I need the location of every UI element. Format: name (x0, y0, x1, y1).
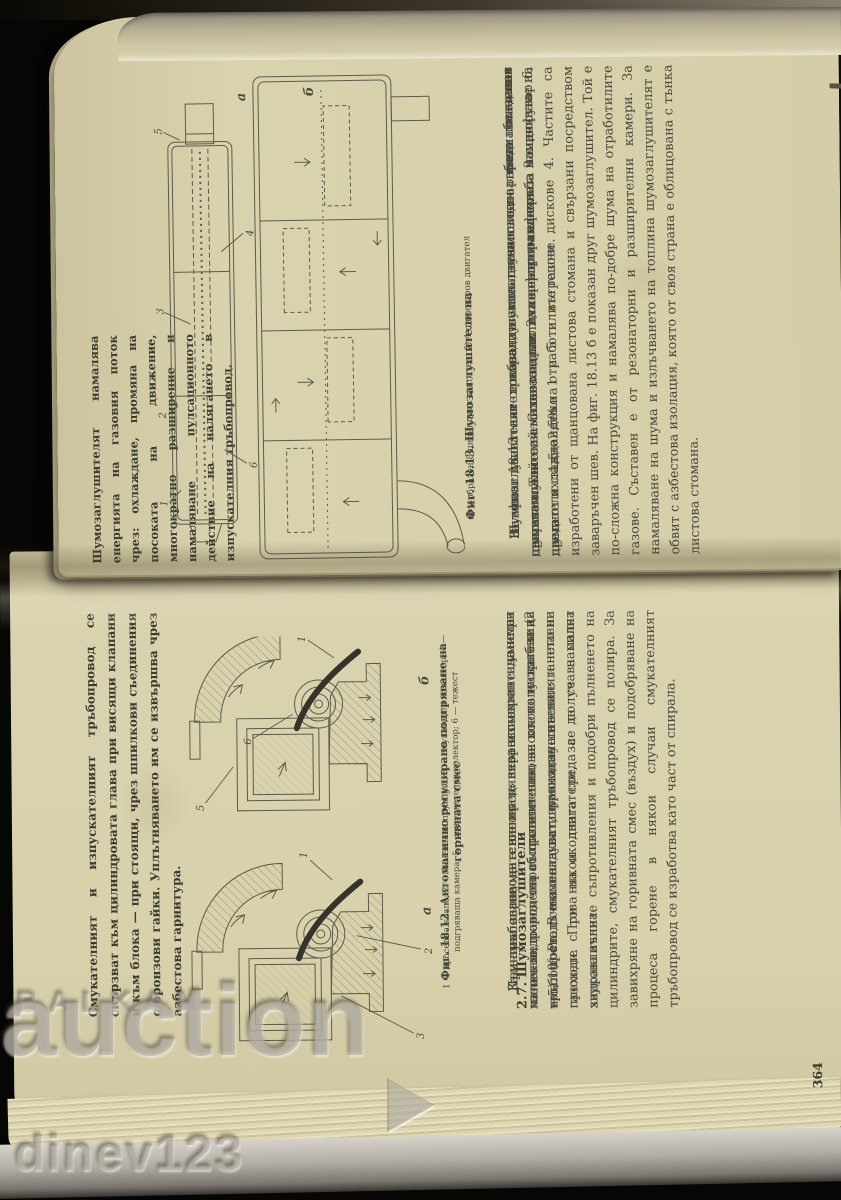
right-page-content: Шумозаглушителят намалява енергията на г… (52, 6, 841, 566)
left-page-body-text: Към тръбопроводите се предявява изискван… (501, 611, 505, 1009)
fig13-label-b: б (302, 86, 317, 96)
paragraph: Шумозаглушителите поради своя начин на р… (499, 66, 567, 557)
figure-18-12-caption: Фиг. 18.12. Автоматично регулирано подгр… (436, 614, 440, 1010)
fig12-callout: 1 (299, 852, 310, 858)
figure-18-12-manifold-diagrams: 3 2 1 5 6 1 а б (188, 635, 437, 1057)
fig13-callout: 2 (158, 412, 169, 420)
fig12-label-b: б (417, 675, 432, 685)
paragraph: Причина за шума е високата скорост на из… (501, 610, 605, 1009)
fig13-callout: 4 (245, 230, 256, 238)
fig13-callout: 1 (159, 500, 170, 507)
left-book-page: Смукателният и изпускателният тръбопрово… (10, 604, 841, 1104)
fig12-callout: 1 (297, 636, 308, 642)
page-number-remnant (829, 83, 841, 88)
fig13-callout: 5 (153, 128, 164, 135)
page-number: 364 (810, 1062, 825, 1088)
fig12-callout: 3 (416, 1033, 427, 1039)
right-page-body-text: Шумозаглушителят трябва да изпълнява сво… (499, 67, 507, 557)
margin-note: Смукателният и изпускателният тръбопрово… (80, 612, 189, 1017)
book-photo: Шумозаглушителят намалява енергията на г… (0, 0, 841, 1200)
fig12-label-a: а (420, 906, 435, 915)
fig13-label-a: а (234, 93, 249, 102)
fig12-callout: 2 (424, 948, 435, 955)
fig12-callout: 5 (196, 805, 207, 811)
fig13-callout: 3 (155, 308, 166, 315)
figure-18-13-muffler-diagrams: 1 2 3 4 5 6 а б (153, 70, 466, 565)
left-page-content: Смукателният и изпускателният тръбопрово… (10, 604, 841, 1104)
caption-legend: 1 — дроселна клапа; 2 — биметална пружин… (439, 614, 465, 1010)
fig13-callout: 6 (249, 461, 260, 468)
right-book-page: Шумозаглушителят намалява енергията на г… (52, 6, 841, 566)
fig12-callout: 6 (243, 738, 254, 745)
